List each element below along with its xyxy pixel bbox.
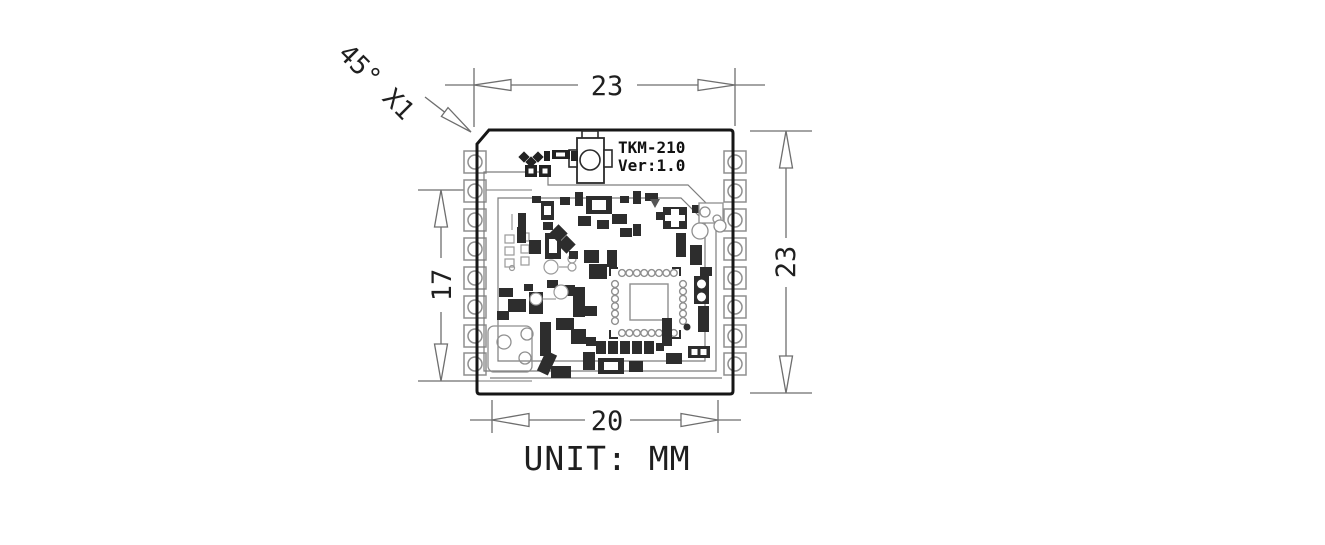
dim-right-label: 23 — [771, 246, 802, 279]
dim-bottom-label: 20 — [591, 406, 624, 437]
module-version-label: Ver:1.0 — [618, 156, 685, 175]
dim-top-label: 23 — [591, 71, 624, 102]
dim-left-label: 17 — [427, 269, 458, 302]
mechanical-drawing-page: 23 23 17 20 45° X1 UNIT: MM TKM-210 Ver:… — [0, 0, 1325, 545]
pcb-mechanical-drawing: 23 23 17 20 45° X1 UNIT: MM TKM-210 Ver:… — [0, 0, 1325, 545]
module-name-label: TKM-210 — [618, 138, 685, 157]
chamfer-note-label: 45° X1 — [332, 39, 420, 127]
unit-note-label: UNIT: MM — [524, 439, 691, 478]
chamfer-leader — [425, 97, 471, 132]
